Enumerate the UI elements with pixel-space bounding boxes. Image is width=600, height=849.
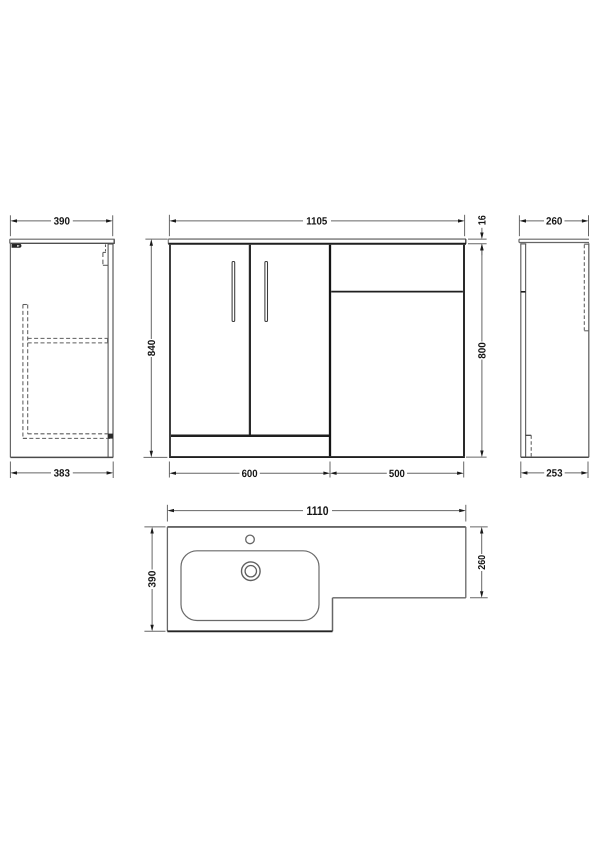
svg-text:600: 600 bbox=[242, 468, 258, 480]
svg-text:500: 500 bbox=[389, 468, 405, 480]
svg-text:840: 840 bbox=[146, 340, 158, 357]
svg-text:800: 800 bbox=[477, 342, 489, 359]
svg-text:16: 16 bbox=[476, 215, 488, 225]
svg-text:1105: 1105 bbox=[306, 216, 327, 228]
svg-text:390: 390 bbox=[147, 570, 159, 587]
svg-text:260: 260 bbox=[477, 554, 488, 569]
svg-text:390: 390 bbox=[54, 216, 71, 228]
svg-text:260: 260 bbox=[546, 216, 563, 228]
svg-text:383: 383 bbox=[54, 468, 71, 480]
svg-text:1110: 1110 bbox=[307, 504, 329, 518]
svg-text:253: 253 bbox=[546, 468, 563, 480]
